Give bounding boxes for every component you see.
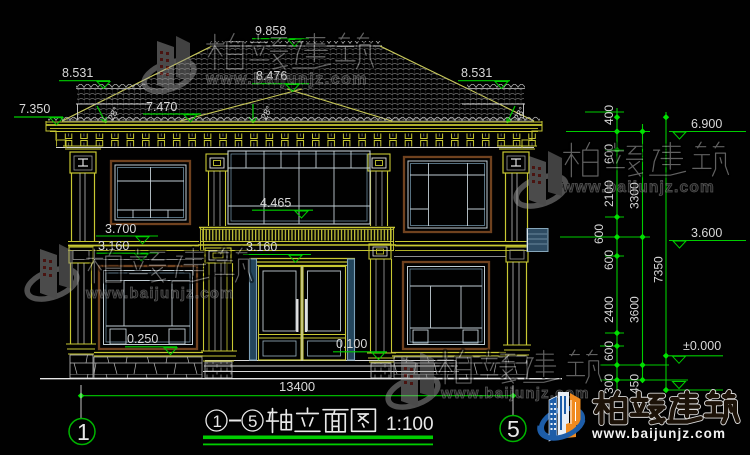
svg-text:5: 5 <box>507 416 520 442</box>
svg-text:0.100: 0.100 <box>336 337 367 351</box>
svg-text:7.350: 7.350 <box>19 102 50 116</box>
svg-text:300: 300 <box>602 374 616 394</box>
svg-text:600: 600 <box>602 250 616 270</box>
svg-text:1:100: 1:100 <box>386 414 434 435</box>
svg-text:8.531: 8.531 <box>461 66 492 80</box>
svg-text:2400: 2400 <box>602 296 616 323</box>
svg-text:600: 600 <box>602 341 616 361</box>
svg-text:3.160: 3.160 <box>246 240 277 254</box>
svg-text:3.700: 3.700 <box>105 222 136 236</box>
svg-text:8.531: 8.531 <box>62 66 93 80</box>
svg-text:www.baijunjz.com: www.baijunjz.com <box>561 179 715 196</box>
svg-text:1: 1 <box>77 419 90 445</box>
svg-text:6.900: 6.900 <box>691 117 722 131</box>
svg-text:1: 1 <box>213 412 222 431</box>
svg-text:4.465: 4.465 <box>260 196 291 210</box>
svg-text:3.600: 3.600 <box>691 226 722 240</box>
svg-text:5: 5 <box>248 412 257 431</box>
svg-text:3600: 3600 <box>628 296 642 323</box>
svg-text:7.470: 7.470 <box>146 100 177 114</box>
svg-text:0.250: 0.250 <box>127 332 158 346</box>
svg-text:400: 400 <box>602 105 616 125</box>
svg-text:600: 600 <box>592 224 606 244</box>
svg-text:www.baijunjz.com: www.baijunjz.com <box>591 426 726 441</box>
svg-text:7350: 7350 <box>652 256 666 283</box>
svg-text:www.baijunjz.com: www.baijunjz.com <box>85 285 235 302</box>
svg-text:www.baijunjz.com: www.baijunjz.com <box>205 71 368 88</box>
svg-text:13400: 13400 <box>279 379 315 394</box>
svg-text:±0.000: ±0.000 <box>683 339 721 353</box>
